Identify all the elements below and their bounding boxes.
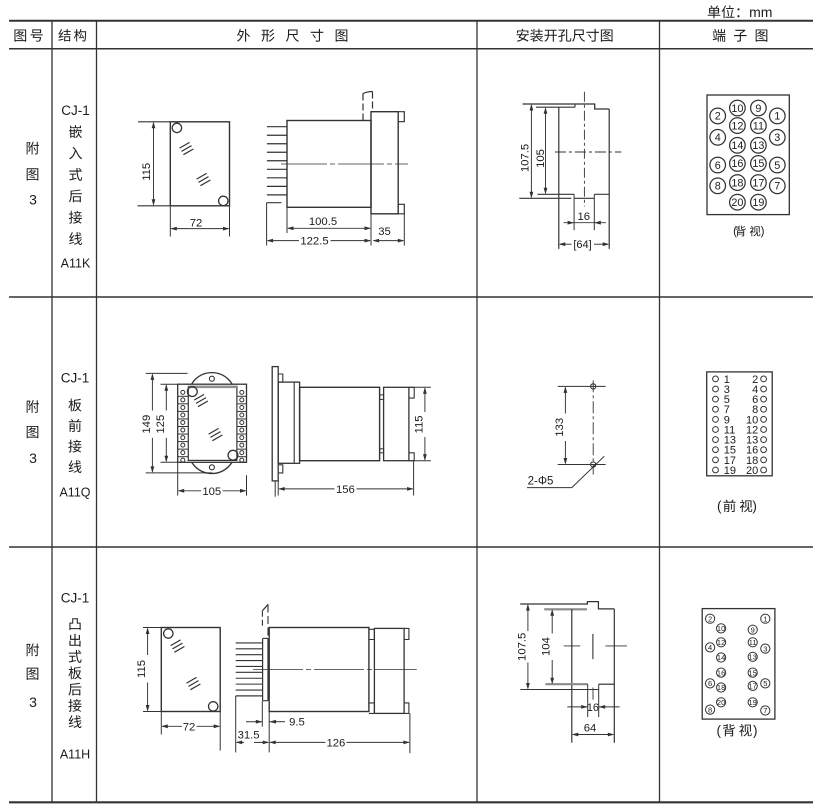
- svg-text:6: 6: [708, 679, 712, 688]
- svg-text:18: 18: [717, 683, 725, 692]
- svg-text:9: 9: [755, 103, 761, 115]
- svg-text:mm: mm: [749, 4, 772, 20]
- svg-text:): ): [753, 723, 758, 738]
- svg-text:72: 72: [190, 218, 203, 230]
- svg-text:4: 4: [708, 643, 712, 652]
- svg-text:A11H: A11H: [60, 747, 90, 761]
- svg-text:20: 20: [746, 465, 758, 477]
- svg-text:8: 8: [708, 705, 712, 714]
- svg-text:20: 20: [717, 698, 725, 707]
- svg-text:105: 105: [202, 486, 221, 498]
- svg-text:5: 5: [774, 160, 780, 172]
- svg-text:3: 3: [29, 450, 37, 466]
- svg-text:125: 125: [155, 415, 167, 434]
- svg-text:15: 15: [749, 668, 757, 677]
- svg-text:2: 2: [708, 614, 712, 623]
- svg-text:1: 1: [774, 111, 780, 123]
- svg-text:133: 133: [554, 418, 566, 437]
- svg-text:19: 19: [724, 465, 736, 477]
- svg-text:10: 10: [717, 624, 725, 633]
- svg-text:7: 7: [774, 181, 780, 193]
- svg-text:19: 19: [749, 698, 757, 707]
- svg-text:10: 10: [731, 103, 743, 115]
- svg-text:11: 11: [753, 120, 764, 132]
- svg-text:CJ-1: CJ-1: [61, 590, 90, 605]
- svg-text:14: 14: [717, 653, 725, 662]
- svg-text:17: 17: [749, 682, 757, 691]
- svg-text:): ): [752, 499, 757, 514]
- svg-text:1: 1: [763, 614, 767, 623]
- svg-text:8: 8: [715, 181, 721, 193]
- svg-text:107.5: 107.5: [516, 633, 528, 661]
- svg-text:4: 4: [715, 132, 721, 144]
- svg-text:122.5: 122.5: [300, 236, 328, 248]
- svg-text:3: 3: [29, 694, 37, 710]
- svg-text:126: 126: [326, 737, 345, 749]
- svg-text:15: 15: [752, 158, 764, 170]
- svg-text:): ): [761, 226, 765, 238]
- svg-text:3: 3: [763, 644, 767, 653]
- svg-text:A11K: A11K: [61, 256, 91, 270]
- svg-text:14: 14: [731, 140, 743, 152]
- svg-text:(: (: [733, 226, 737, 238]
- svg-text:CJ-1: CJ-1: [61, 370, 90, 385]
- svg-text:19: 19: [752, 197, 764, 209]
- svg-text:6: 6: [715, 160, 721, 172]
- svg-text:CJ-1: CJ-1: [61, 103, 90, 118]
- svg-text:16: 16: [731, 158, 743, 170]
- svg-text:12: 12: [731, 120, 743, 132]
- svg-text:3: 3: [29, 191, 37, 207]
- svg-text:16: 16: [578, 211, 591, 223]
- svg-text:31.5: 31.5: [238, 730, 260, 742]
- svg-text:156: 156: [336, 484, 355, 496]
- svg-text:149: 149: [141, 415, 153, 434]
- svg-text:18: 18: [731, 177, 743, 189]
- svg-text:72: 72: [183, 721, 196, 733]
- svg-text:17: 17: [752, 177, 764, 189]
- svg-text:20: 20: [731, 197, 743, 209]
- svg-text:104: 104: [541, 637, 553, 656]
- svg-text:115: 115: [136, 660, 148, 678]
- svg-text:(: (: [717, 499, 722, 514]
- svg-text:115: 115: [413, 415, 425, 433]
- svg-text:107.5: 107.5: [520, 144, 532, 172]
- svg-text:3: 3: [774, 132, 780, 144]
- svg-text:16: 16: [717, 668, 725, 677]
- svg-text:A11Q: A11Q: [59, 486, 90, 500]
- svg-text:2: 2: [715, 111, 721, 123]
- svg-text:2-Φ5: 2-Φ5: [528, 476, 554, 488]
- svg-text:16: 16: [587, 702, 599, 714]
- svg-text:13: 13: [752, 140, 764, 152]
- svg-text:9.5: 9.5: [289, 717, 305, 729]
- svg-text:35: 35: [378, 226, 391, 238]
- svg-text:12: 12: [717, 638, 725, 647]
- svg-text:[64]: [64]: [573, 239, 591, 251]
- svg-text:64: 64: [584, 723, 597, 735]
- svg-text:(: (: [717, 723, 722, 738]
- svg-text:9: 9: [751, 625, 755, 634]
- svg-text:13: 13: [749, 652, 757, 661]
- svg-text:7: 7: [763, 706, 767, 715]
- svg-text:100.5: 100.5: [309, 216, 337, 228]
- svg-text:5: 5: [763, 679, 767, 688]
- svg-text:11: 11: [749, 638, 757, 647]
- svg-text:115: 115: [141, 163, 153, 181]
- svg-text:105: 105: [535, 149, 547, 168]
